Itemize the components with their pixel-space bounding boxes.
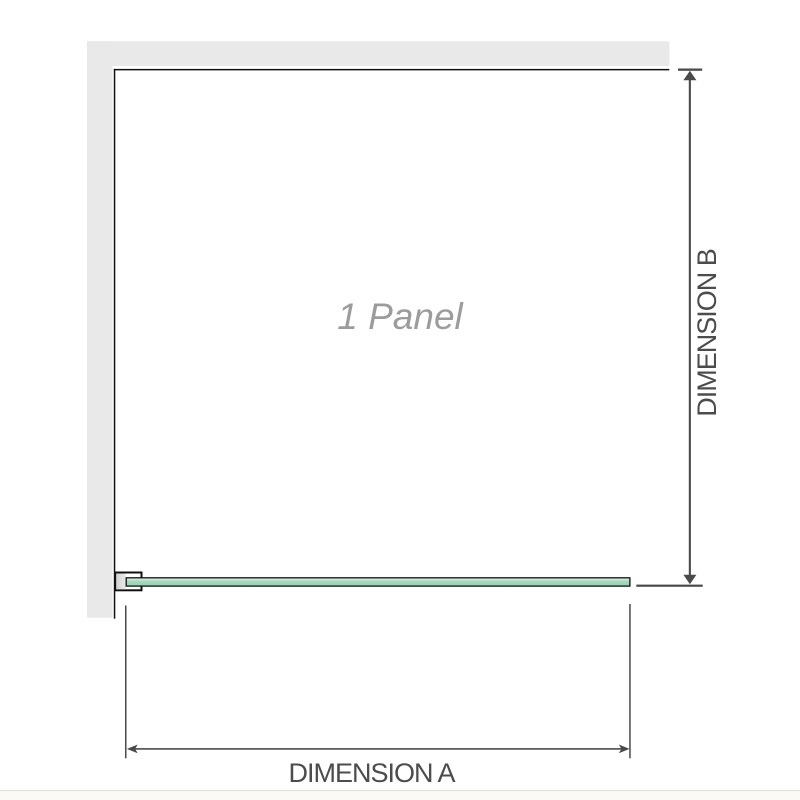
svg-text:DIMENSION A: DIMENSION A — [288, 758, 455, 788]
svg-text:DIMENSION B: DIMENSION B — [692, 249, 722, 417]
svg-text:1 Panel: 1 Panel — [337, 296, 464, 337]
